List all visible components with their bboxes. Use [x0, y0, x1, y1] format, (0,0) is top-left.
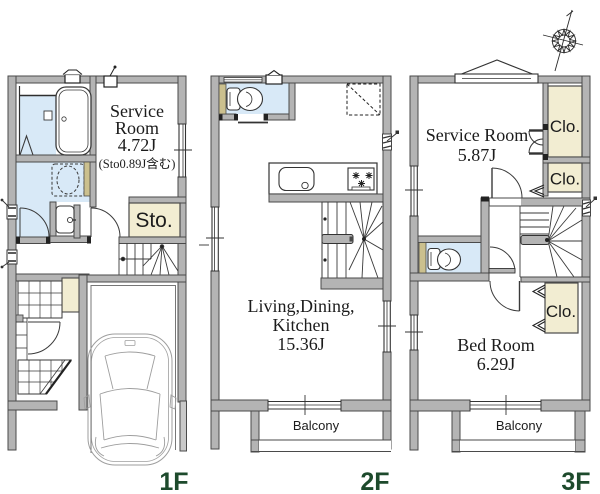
svg-text:Clo.: Clo.: [550, 117, 580, 136]
svg-text:(Sto0.89J含む): (Sto0.89J含む): [99, 156, 176, 171]
svg-text:15.36J: 15.36J: [277, 334, 325, 354]
svg-text:Bed Room: Bed Room: [457, 335, 535, 355]
svg-text:4.72J: 4.72J: [118, 135, 157, 155]
svg-text:Service Room: Service Room: [426, 125, 528, 145]
svg-text:6.29J: 6.29J: [477, 354, 516, 374]
svg-text:1F: 1F: [159, 468, 188, 494]
svg-text:2F: 2F: [360, 468, 389, 494]
svg-text:Balcony: Balcony: [293, 418, 340, 433]
svg-text:Clo.: Clo.: [550, 170, 580, 189]
svg-text:Sto.: Sto.: [135, 209, 172, 232]
svg-text:Living,Dining,: Living,Dining,: [248, 296, 355, 316]
svg-text:5.87J: 5.87J: [458, 145, 497, 165]
svg-text:Balcony: Balcony: [496, 418, 543, 433]
svg-text:Kitchen: Kitchen: [273, 315, 330, 335]
svg-text:Clo.: Clo.: [546, 302, 576, 321]
svg-text:3F: 3F: [561, 468, 590, 494]
